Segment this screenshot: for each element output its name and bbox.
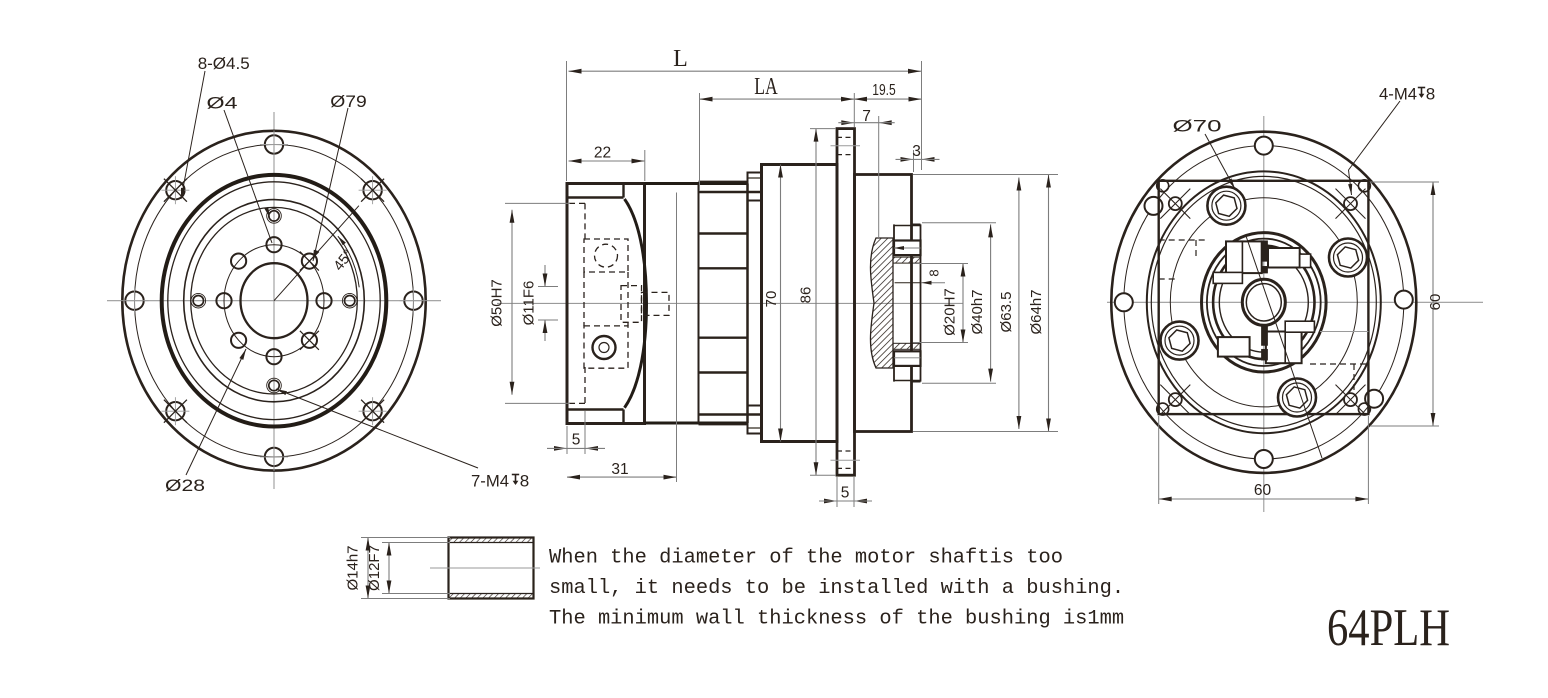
svg-text:Ø28: Ø28 xyxy=(165,476,205,495)
svg-text:19.5: 19.5 xyxy=(872,82,896,99)
svg-text:60: 60 xyxy=(1427,294,1444,311)
svg-text:Ø12F7: Ø12F7 xyxy=(366,545,383,591)
svg-text:86: 86 xyxy=(798,287,815,304)
svg-text:Ø79: Ø79 xyxy=(330,92,367,111)
svg-text:small, it needs to be installe: small, it needs to be installed with a b… xyxy=(549,577,1124,600)
svg-text:Ø14h7: Ø14h7 xyxy=(345,545,362,590)
svg-text:Ø40h7: Ø40h7 xyxy=(969,289,986,334)
svg-text:22: 22 xyxy=(594,145,611,162)
svg-text:8-Ø4.5: 8-Ø4.5 xyxy=(198,54,250,73)
svg-text:5: 5 xyxy=(572,432,581,449)
svg-text:When the diameter of the motor: When the diameter of the motor shaftis t… xyxy=(549,547,1063,570)
svg-text:5: 5 xyxy=(841,485,850,502)
svg-text:8: 8 xyxy=(520,472,529,491)
svg-text:Ø70: Ø70 xyxy=(1173,117,1222,136)
svg-text:64PLH: 64PLH xyxy=(1327,599,1450,657)
svg-text:4-M4: 4-M4 xyxy=(1379,85,1417,104)
svg-text:7-M4: 7-M4 xyxy=(471,472,509,491)
svg-text:8: 8 xyxy=(1426,85,1435,104)
svg-text:3: 3 xyxy=(912,143,921,160)
svg-text:Ø4: Ø4 xyxy=(207,94,238,113)
svg-text:L: L xyxy=(673,46,688,72)
svg-text:The minimum wall thickness of: The minimum wall thickness of the bushin… xyxy=(549,608,1124,631)
svg-text:Ø63.5: Ø63.5 xyxy=(998,292,1015,333)
svg-text:Ø11F6: Ø11F6 xyxy=(521,281,538,326)
svg-text:70: 70 xyxy=(763,291,780,308)
svg-text:60: 60 xyxy=(1254,482,1272,499)
svg-text:31: 31 xyxy=(611,461,628,478)
svg-text:Ø64h7: Ø64h7 xyxy=(1028,289,1045,334)
svg-text:Ø50H7: Ø50H7 xyxy=(489,279,506,327)
svg-text:LA: LA xyxy=(754,74,778,100)
svg-text:7: 7 xyxy=(862,108,871,125)
svg-text:Ø20H7: Ø20H7 xyxy=(942,288,959,336)
svg-text:8: 8 xyxy=(927,269,942,276)
